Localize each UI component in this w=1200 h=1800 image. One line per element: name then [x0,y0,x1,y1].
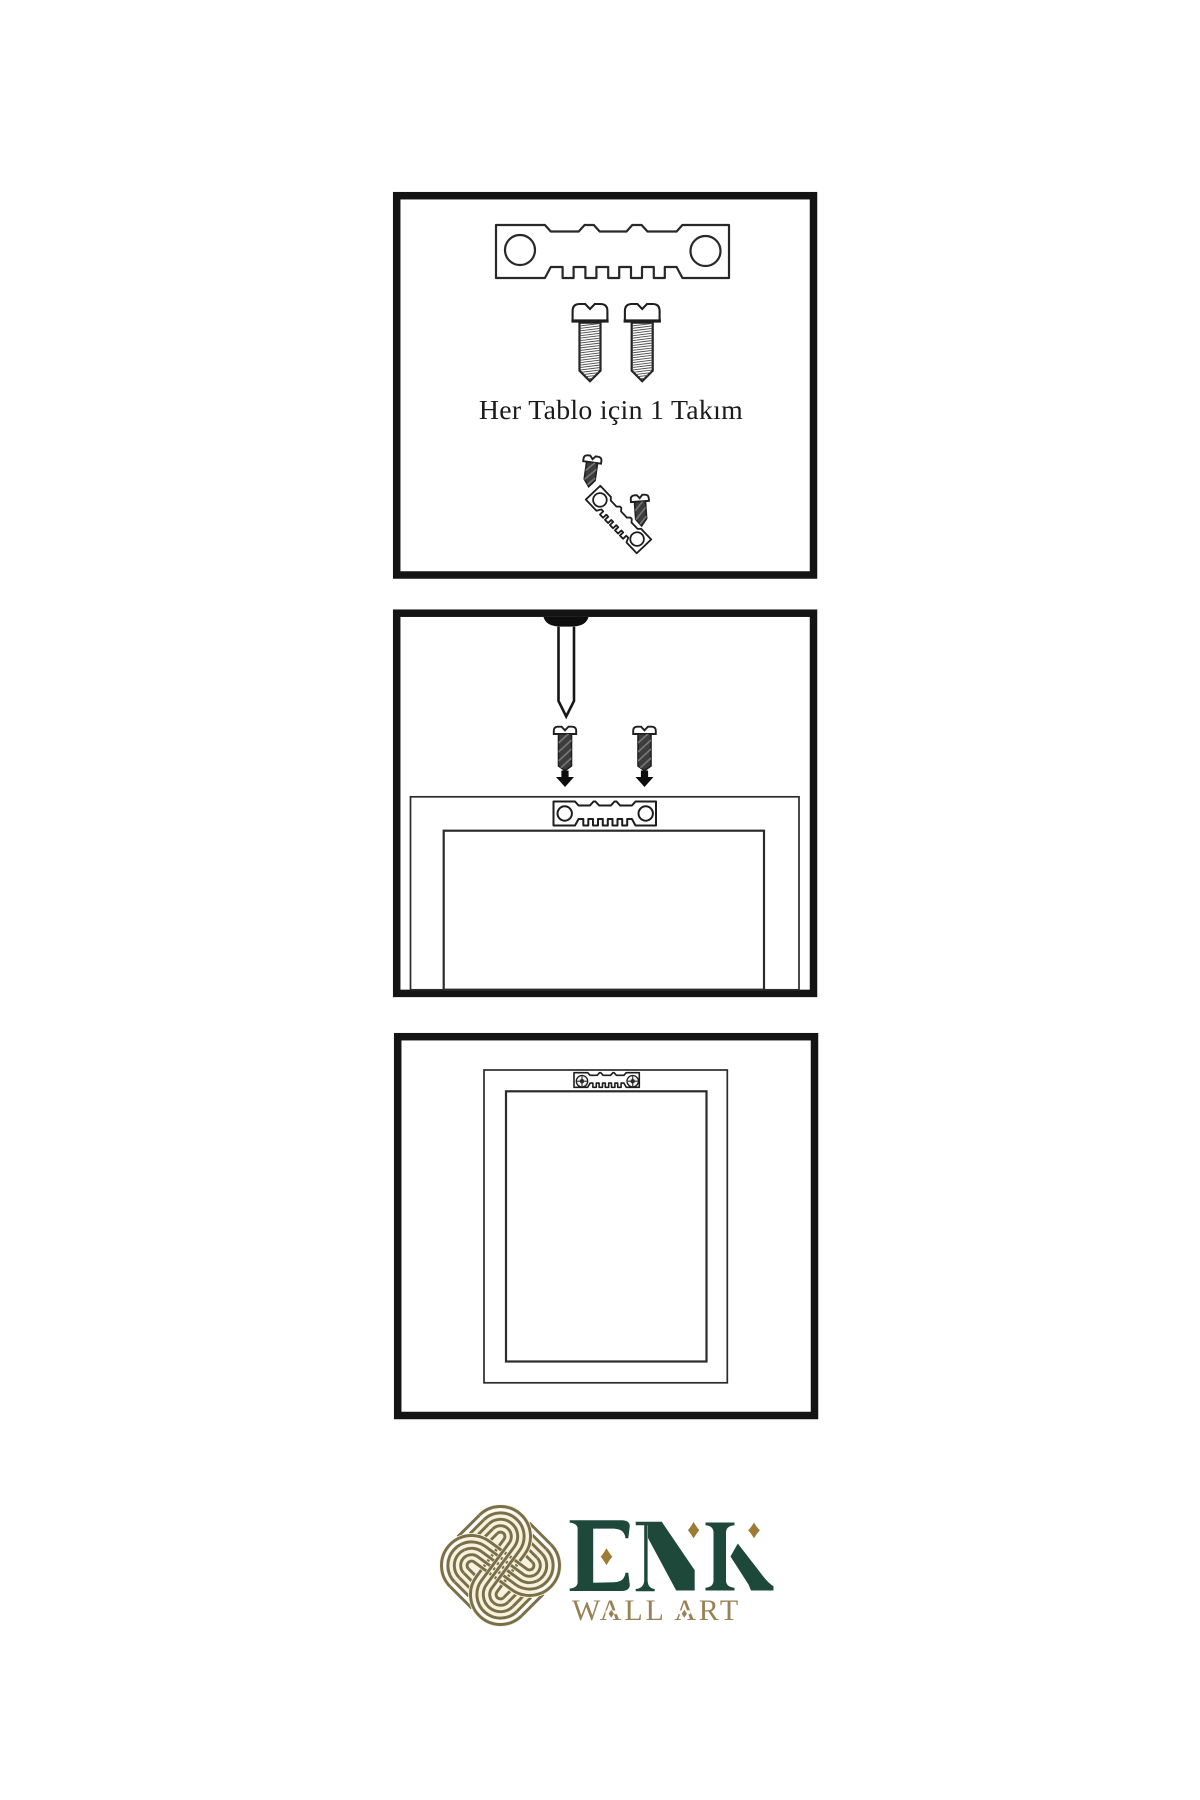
svg-text:Her Tablo için 1 Takım: Her Tablo için 1 Takım [479,395,743,426]
svg-text:WALL ART: WALL ART [572,1594,741,1627]
